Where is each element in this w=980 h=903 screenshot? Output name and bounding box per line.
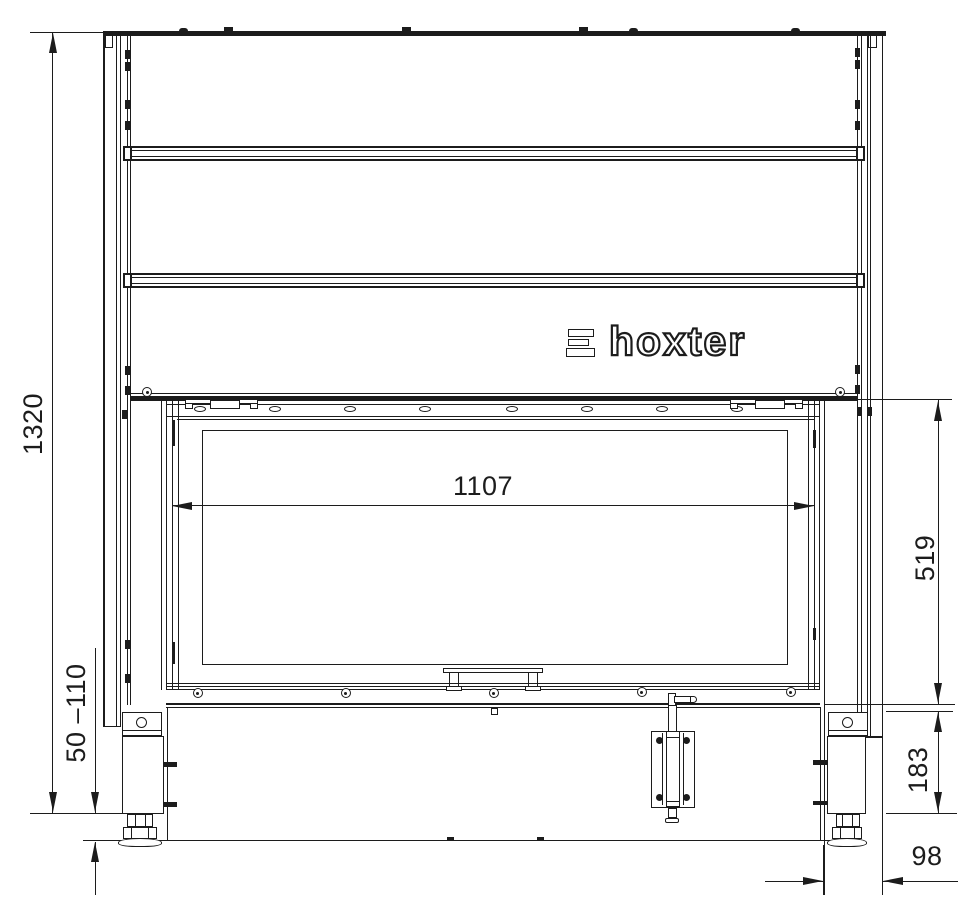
dim-glass-width-label: 1107: [433, 472, 533, 500]
latch-rod: [668, 705, 677, 732]
right-panel-line: [870, 35, 871, 737]
rail-band-line: [131, 273, 858, 275]
door-slide-bracket-left-plate: [210, 400, 240, 409]
door-slide-bracket-right-plate: [755, 400, 785, 409]
rail-end-block: [856, 146, 865, 161]
dim-overall-height-ext-bottom: [30, 813, 122, 814]
latch-plate-tab: [666, 731, 680, 738]
door-slide-bracket-right-foot: [730, 403, 738, 409]
right-foot-nut-facet: [840, 827, 841, 838]
left-leg-bracket-hole: [136, 717, 147, 728]
left-leg-column: [122, 736, 164, 814]
bolt-icon: [656, 737, 663, 744]
vent-slot: [506, 406, 518, 412]
technical-drawing-fireplace-front-view: hoxter: [0, 0, 980, 903]
arrow-up-icon: [934, 401, 942, 421]
arrow-down-icon: [49, 792, 57, 812]
door-slide-bracket-left-foot: [250, 403, 258, 409]
latch-plate-tab: [666, 801, 680, 808]
right-foot-stem: [836, 814, 860, 827]
door-handle-post: [449, 672, 459, 687]
vent-slot: [581, 406, 593, 412]
base-panel-left-edge: [167, 707, 168, 840]
right-frame-line: [861, 35, 862, 712]
latch-plate-line: [679, 733, 680, 805]
dim-overall-height-line: [52, 32, 53, 813]
dim-foot-range-line-upper: [95, 648, 96, 813]
dim-base-height-ext-top: [886, 711, 953, 712]
right-panel-outer-line: [882, 31, 884, 737]
left-foot-stem-facet: [145, 814, 146, 826]
right-leg-pin: [813, 760, 827, 765]
top-vent-bump: [791, 28, 800, 31]
rail-end-block: [856, 273, 865, 288]
arrow-up-icon: [49, 33, 57, 53]
latch-handle-arm: [674, 696, 697, 703]
weld-clip: [125, 121, 130, 130]
plinth-center-tab: [491, 708, 498, 715]
base-panel-tick: [537, 837, 544, 840]
right-foot-base: [827, 838, 867, 847]
right-panel-line: [867, 35, 868, 737]
latch-handle-arm-line: [690, 696, 691, 702]
arrow-left-icon: [883, 877, 903, 885]
weld-clip: [125, 640, 130, 649]
door-bottom-line: [166, 683, 820, 684]
rail-band-line: [131, 146, 858, 148]
body-bottom-line: [131, 393, 858, 394]
rail-band-line: [131, 277, 858, 278]
left-foot-base: [118, 838, 162, 847]
arrow-left-icon: [172, 502, 192, 510]
left-foot-nut-facet: [148, 827, 149, 838]
right-foot-stem-facet: [842, 814, 843, 826]
dim-side-offset-ext-right: [882, 737, 883, 895]
arrow-right-icon: [803, 877, 823, 885]
door-frame-line: [808, 400, 809, 690]
left-foot-nut-facet: [131, 827, 132, 838]
rail-band-line: [131, 156, 858, 157]
right-leg-column: [827, 736, 866, 814]
door-frame-tick: [813, 430, 816, 448]
bolt-icon: [683, 737, 690, 744]
left-foot-stem-facet: [135, 814, 136, 826]
hoxter-triple-bar-icon: [565, 323, 597, 359]
dim-side-offset-label: 98: [887, 842, 967, 870]
dim-overall-height-ext-top: [30, 32, 103, 33]
rail-band-line: [131, 286, 858, 288]
weld-clip: [855, 100, 860, 109]
door-slide-bracket-right-foot: [795, 403, 803, 409]
door-rail-left: [161, 400, 162, 690]
arrow-down-icon: [934, 792, 942, 812]
door-top-line: [166, 416, 820, 417]
right-foot-nut: [832, 827, 862, 839]
weld-clip: [125, 50, 130, 59]
arrow-down-icon: [91, 792, 99, 812]
vent-slot: [419, 406, 431, 412]
dim-base-height-ext-bottom: [886, 813, 957, 814]
arrow-up-icon: [91, 842, 99, 862]
arrow-down-icon: [934, 683, 942, 703]
left-panel-line: [116, 35, 117, 727]
latch-stub: [668, 808, 678, 818]
left-leg-pin: [164, 802, 177, 807]
left-foot-stem: [127, 814, 153, 827]
screw-icon: [835, 387, 845, 397]
vent-slot: [656, 406, 668, 412]
floor-line: [83, 840, 863, 841]
right-foot-stem-facet: [852, 814, 853, 826]
arrow-up-icon: [934, 712, 942, 732]
left-frame-line: [130, 35, 131, 705]
rail-end-block: [123, 273, 132, 288]
weld-clip: [855, 121, 860, 130]
dim-glass-width-line: [172, 505, 814, 506]
left-foot-nut: [123, 827, 157, 839]
door-bottom-line: [166, 686, 820, 687]
top-cap-plate: [103, 31, 886, 36]
screw-icon: [142, 387, 152, 397]
left-panel-bottom-cap: [103, 726, 120, 728]
door-top-line: [166, 404, 820, 405]
top-vent-bump: [402, 27, 411, 31]
screw-icon: [637, 687, 647, 697]
top-vent-bump: [629, 28, 638, 31]
screw-icon: [193, 688, 203, 698]
weld-clip: [125, 100, 130, 109]
right-leg-bracket-hole: [842, 717, 853, 728]
vent-slot: [344, 406, 356, 412]
weld-clip: [855, 60, 860, 69]
logo-text: hoxter: [609, 321, 746, 362]
rail-band-line: [131, 150, 858, 151]
base-panel-right-edge: [820, 707, 821, 840]
arrow-right-icon: [794, 502, 814, 510]
rail-band-line: [131, 159, 858, 161]
top-vent-bump: [579, 27, 588, 31]
door-glass: [202, 430, 788, 665]
weld-clip: [125, 62, 130, 71]
latch-stub-cap: [665, 818, 679, 823]
latch-plate-line: [666, 733, 667, 805]
top-vent-bump: [224, 27, 233, 31]
left-leg-pin: [164, 762, 177, 767]
top-vent-bump: [179, 28, 188, 31]
dim-door-height-ext-bottom: [824, 704, 955, 705]
base-panel-tick: [447, 837, 454, 840]
weld-clip: [125, 674, 130, 683]
door-frame-tick: [813, 628, 816, 640]
dim-door-height-label: 519: [910, 518, 940, 598]
weld-clip: [857, 407, 862, 416]
bolt-icon: [683, 794, 690, 801]
right-leg-pin: [813, 801, 827, 806]
door-frame-tick: [172, 642, 175, 664]
weld-clip: [855, 365, 860, 374]
door-frame-tick: [172, 420, 175, 446]
weld-clip: [122, 410, 127, 419]
dim-base-height-label: 183: [903, 730, 933, 810]
dim-side-offset-ext-left: [823, 845, 824, 895]
weld-clip: [867, 407, 872, 416]
door-top-line: [177, 419, 814, 420]
door-slide-bracket-left-foot: [185, 403, 193, 409]
dim-foot-range-label: 50 –110: [61, 648, 91, 778]
bolt-icon: [656, 794, 663, 801]
left-panel-line: [120, 35, 121, 727]
weld-clip: [125, 366, 130, 375]
rail-end-block: [123, 146, 132, 161]
screw-icon: [489, 688, 499, 698]
screw-icon: [341, 688, 351, 698]
screw-icon: [786, 687, 796, 697]
weld-clip: [855, 48, 860, 57]
right-foot-nut-facet: [854, 827, 855, 838]
door-rail-right-extension: [824, 400, 825, 895]
dim-door-height-ext-top: [822, 399, 952, 400]
dim-overall-height-label: 1320: [18, 374, 48, 474]
left-leg-bracket-line: [122, 730, 162, 731]
vent-slot: [269, 406, 281, 412]
weld-clip: [125, 386, 130, 395]
right-leg-bracket-line: [828, 730, 868, 731]
brand-logo: hoxter: [565, 320, 746, 362]
door-frame-line: [178, 400, 179, 690]
plinth-top-line: [166, 703, 820, 705]
vent-slot: [194, 406, 206, 412]
top-end-tab-left: [105, 35, 113, 48]
left-panel-outer-line: [103, 35, 105, 727]
right-panel-bottom-step: [866, 736, 883, 738]
rail-band-line: [131, 283, 858, 284]
door-handle-post: [528, 672, 538, 687]
